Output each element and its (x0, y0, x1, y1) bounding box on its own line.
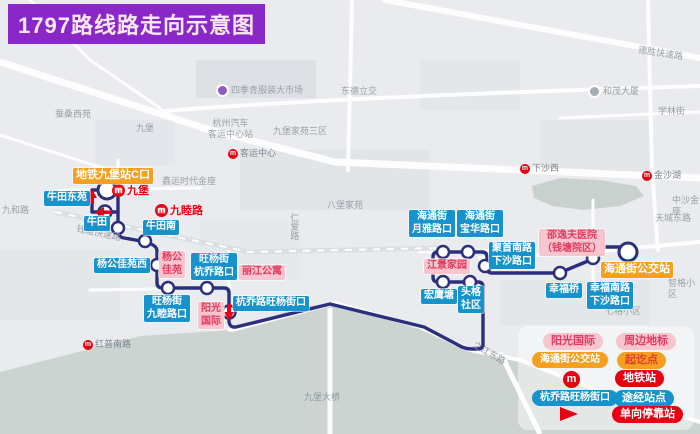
stop-label: 杭乔路旺杨街口 (233, 296, 309, 311)
oneway-arrow-icon (560, 407, 578, 421)
map-label-metro: m金沙湖 (642, 170, 681, 181)
stop-label: 牛田 (84, 216, 110, 231)
metro-icon: m (155, 204, 168, 217)
stop-label: 宏鹰塘 (421, 289, 457, 304)
map-label: 九和路 (2, 205, 29, 216)
map-label: 东德立交 (341, 86, 377, 97)
stop-label: 幸福桥 (546, 283, 582, 298)
metro-icon: m (563, 371, 580, 388)
map-label-metro: m红普南路 (83, 339, 131, 350)
stop-marker-haitongjie-baohualukou (462, 246, 474, 258)
stop-label: 旺杨街 九睦路口 (144, 295, 190, 322)
legend-key-stop: 途经站点 (614, 390, 674, 407)
landmark-label: 阳光 国际 (198, 302, 224, 329)
poi-icon (588, 85, 601, 98)
metro-icon: m (83, 340, 93, 350)
metro-icon: m (112, 184, 125, 197)
map-label: 学林街 (658, 106, 685, 117)
map-label: 仁爱路 (288, 213, 299, 240)
stop-label: 牛田东苑 (44, 191, 90, 206)
stop-marker-terminal-end (619, 243, 637, 261)
map-label: 鑫运时代金座 (162, 176, 216, 187)
landmark-label: 邵逸夫医院 （钱塘院区） (539, 229, 605, 256)
map-label-metro: m下沙西 (520, 163, 559, 174)
stop-label-start: 地铁九堡站C口 (73, 168, 153, 184)
metro-icon: m (642, 171, 652, 181)
stop-label: 海通街 月雅路口 (409, 210, 455, 237)
stop-label: 幸福南路 下沙路口 (587, 282, 633, 309)
route-map: 1797路线路走向示意图 蚕桑西苑 九堡 四季青服装大市场 东德立交 杭州汽车 … (0, 0, 700, 434)
stop-label: 旺杨街 杭乔路口 (191, 253, 237, 280)
legend-sample-oneway (560, 407, 578, 421)
stop-marker-wangyangjie-hangqiaolukou (201, 282, 213, 294)
stop-marker-hongyingtang (437, 276, 449, 288)
stop-label-end: 海通街公交站 (601, 262, 673, 278)
map-label-poi: 和茂大厦 (588, 85, 639, 98)
metro-icon: m (520, 164, 530, 174)
stop-label: 牛田南 (143, 220, 179, 235)
landmark-label: 江景家园 (424, 259, 470, 274)
map-label: 蚕桑西苑 (55, 109, 91, 120)
legend-key-landmark: 周边地标 (616, 333, 676, 350)
metro-icon: m (228, 149, 238, 159)
map-label: 中沙金座 (672, 195, 700, 218)
poi-icon (216, 84, 229, 97)
stop-marker-xingfuqiao (554, 267, 566, 279)
map-label-metro: m客运中心 (228, 148, 276, 159)
map-label: 九堡家苑三区 (273, 126, 327, 137)
map-label: 九堡大桥 (304, 392, 340, 403)
legend-sample-stop: 杭乔路旺杨街口 (532, 390, 618, 406)
stop-label: 头格 社区 (458, 286, 484, 313)
stop-label: 杨公佳苑西 (94, 258, 150, 273)
legend-key-oneway: 单向停靠站 (612, 406, 683, 423)
legend-key-terminal: 起讫点 (617, 352, 666, 369)
landmark-label: 丽江公寓 (239, 265, 285, 280)
landmark-label: 杨公 佳苑 (159, 251, 185, 278)
stop-label: 海通街 宝华路口 (457, 210, 503, 237)
stop-marker-wangyangjie-jiumulukou (162, 282, 174, 294)
legend-sample-metro: m (563, 371, 580, 388)
page-title: 1797路线路走向示意图 (8, 4, 265, 44)
stop-marker-haitongjie-yueyalukou (437, 246, 449, 258)
legend-sample-landmark: 阳光国际 (543, 333, 603, 350)
map-label-poi: 四季青服装大市场 (216, 84, 303, 97)
stop-label: 聚首南路 下沙路口 (489, 242, 535, 269)
map-label: 智格小区 (668, 278, 700, 301)
metro-station-jiumulu: m九睦路 (155, 202, 203, 218)
stop-marker-niutiannan (139, 235, 151, 247)
metro-station-jiubao: m九堡 (112, 182, 149, 198)
map-label: 九堡 (136, 123, 154, 134)
map-label: 八堡家苑 (327, 200, 363, 211)
legend-sample-terminal: 海通街公交站 (532, 352, 608, 368)
map-label: 杭州汽车 客运中心站 (208, 118, 253, 141)
legend-key-metro: 地铁站 (615, 370, 664, 387)
